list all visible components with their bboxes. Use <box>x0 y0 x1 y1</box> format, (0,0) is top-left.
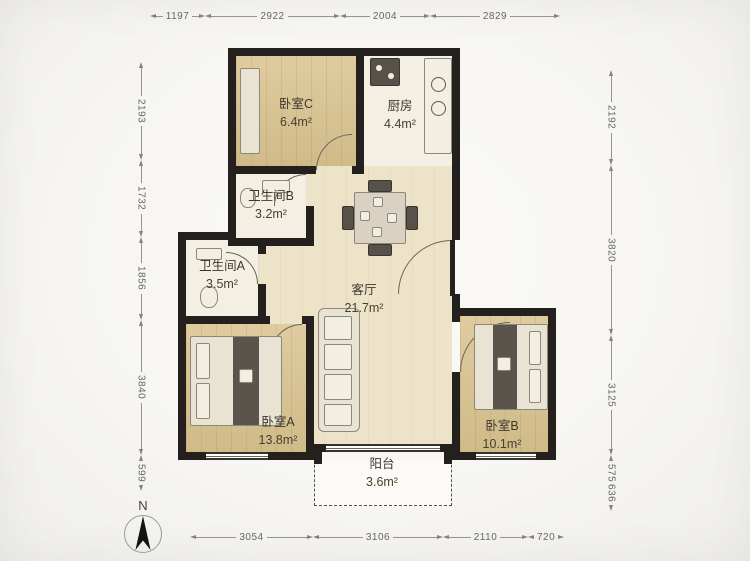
room-name: 卫生间B <box>223 188 319 206</box>
dim-line <box>141 214 142 231</box>
north-arrow-icon <box>134 516 152 550</box>
bedroom-a-window <box>206 452 268 460</box>
dim-value: 1197 <box>166 11 190 22</box>
dim-line <box>156 16 163 17</box>
dim-line <box>196 537 236 538</box>
room-area: 6.4m² <box>248 114 344 132</box>
dim-line <box>141 68 142 96</box>
room-name: 阳台 <box>334 456 430 474</box>
dim-line <box>141 403 142 449</box>
dimension-segment: 2193 <box>134 62 148 160</box>
dim-value: 3820 <box>606 238 617 262</box>
dimension-segment: 3106 <box>313 531 443 543</box>
dim-value: 1856 <box>136 266 147 290</box>
room-label-bathroom-b: 卫生间B 3.2m² <box>223 188 319 223</box>
dimension-segment: 636 <box>604 481 618 510</box>
room-area: 21.7m² <box>316 300 412 318</box>
dim-line <box>267 537 307 538</box>
room-area: 10.1m² <box>454 436 550 454</box>
wall-segment <box>352 166 364 174</box>
room-label-bathroom-a: 卫生间A 3.5m² <box>174 258 270 293</box>
dim-line <box>400 16 424 17</box>
wall-segment <box>228 48 236 174</box>
wall-segment <box>302 316 314 324</box>
room-label-balcony: 阳台 3.6m² <box>334 456 430 491</box>
sofa-cushion <box>324 344 352 370</box>
arrow-left-icon <box>528 535 534 539</box>
dining-chair <box>342 206 354 230</box>
dim-value: 3125 <box>606 383 617 407</box>
dim-line <box>141 166 142 183</box>
bed-bedroom-b <box>474 324 548 410</box>
dim-line <box>449 537 471 538</box>
place-setting <box>373 197 383 207</box>
dim-value: 2192 <box>606 105 617 129</box>
sink-icon <box>431 77 446 92</box>
room-area: 13.8m² <box>230 432 326 450</box>
dim-line <box>393 537 437 538</box>
burner-icon <box>376 65 382 71</box>
dim-line <box>611 341 612 380</box>
dim-value: 2193 <box>136 99 147 123</box>
dim-value: 2004 <box>373 11 397 22</box>
room-area: 3.5m² <box>174 276 270 294</box>
dimension-segment: 2110 <box>443 531 528 543</box>
room-name: 卧室B <box>454 418 550 436</box>
room-label-living-room: 客厅 21.7m² <box>316 282 412 317</box>
dim-line <box>611 133 612 159</box>
floor-plan: 卧室C 6.4m² 厨房 4.4m² 卫生间B 3.2m² 卫生间A 3.5m²… <box>0 0 750 561</box>
entrance-door-leaf <box>450 240 455 296</box>
dimension-segment: 2004 <box>340 10 430 22</box>
dimension-segment: 2192 <box>604 70 618 165</box>
dim-line <box>611 410 612 449</box>
dim-line <box>288 16 334 17</box>
wall-segment <box>178 232 236 240</box>
wall-segment <box>258 246 266 254</box>
arrow-right-icon <box>558 535 564 539</box>
dim-line <box>192 16 199 17</box>
room-name: 客厅 <box>316 282 412 300</box>
wall-segment <box>228 238 314 246</box>
dim-value: 2922 <box>260 11 284 22</box>
dim-line <box>141 243 142 263</box>
wall-segment <box>452 316 460 322</box>
compass: N <box>118 498 168 553</box>
pillow <box>196 383 210 419</box>
room-label-bedroom-b: 卧室B 10.1m² <box>454 418 550 453</box>
dimension-segment: 3820 <box>604 165 618 335</box>
wall-segment <box>452 308 556 316</box>
sofa-cushion <box>324 316 352 340</box>
bed-bedroom-a <box>190 336 282 426</box>
dining-chair <box>406 206 418 230</box>
bedroom-b-window <box>476 452 536 460</box>
arrow-up-icon <box>139 455 143 461</box>
pillow <box>529 369 541 403</box>
room-area: 3.6m² <box>334 474 430 492</box>
wall-segment <box>314 452 322 464</box>
dimension-segment: 1197 <box>150 10 205 22</box>
arrow-up-icon <box>609 455 613 461</box>
compass-north-label: N <box>118 498 168 513</box>
dim-line <box>141 326 142 372</box>
wall-segment <box>452 48 460 170</box>
dim-value: 599 <box>136 464 147 482</box>
place-setting <box>372 227 382 237</box>
wall-segment <box>452 170 460 240</box>
room-label-kitchen: 厨房 4.4m² <box>352 98 448 133</box>
arrow-right-icon <box>554 14 560 18</box>
dimension-segment: 2829 <box>430 10 560 22</box>
sofa-cushion <box>324 374 352 400</box>
dimension-segment: 3840 <box>134 320 148 455</box>
dim-value: 3054 <box>239 532 263 543</box>
room-name: 卫生间A <box>174 258 270 276</box>
dim-value: 720 <box>537 532 555 543</box>
dimension-segment: 3125 <box>604 335 618 455</box>
sofa-cushion <box>324 404 352 426</box>
pillow <box>529 331 541 365</box>
dim-value: 3840 <box>136 375 147 399</box>
stove <box>370 58 400 86</box>
dim-value: 575 <box>606 464 617 482</box>
arrow-down-icon <box>139 485 143 491</box>
dimension-segment: 2922 <box>205 10 340 22</box>
dim-line <box>319 537 363 538</box>
dining-chair <box>368 180 392 192</box>
place-setting <box>360 211 370 221</box>
dim-value: 636 <box>606 484 617 502</box>
dimension-segment: 575 <box>604 455 618 481</box>
dimension-segment: 1856 <box>134 237 148 320</box>
dim-line <box>141 294 142 314</box>
dim-line <box>500 537 522 538</box>
dim-line <box>346 16 370 17</box>
dim-value: 1732 <box>136 186 147 210</box>
dim-value: 2829 <box>483 11 507 22</box>
bed-tray <box>239 369 253 383</box>
dim-value: 2110 <box>474 532 498 543</box>
pillow <box>196 343 210 379</box>
burner-icon <box>388 73 394 79</box>
dim-value: 3106 <box>366 532 390 543</box>
arrow-down-icon <box>609 505 613 511</box>
place-setting <box>387 213 397 223</box>
dimension-segment: 720 <box>528 531 560 543</box>
wall-segment <box>444 452 452 464</box>
room-label-bedroom-c: 卧室C 6.4m² <box>248 96 344 131</box>
room-label-bedroom-a: 卧室A 13.8m² <box>230 414 326 449</box>
bed-tray <box>497 357 511 371</box>
dimension-segment: 599 <box>134 455 148 492</box>
room-area: 4.4m² <box>352 116 448 134</box>
compass-circle <box>124 515 162 553</box>
dim-line <box>211 16 257 17</box>
wall-segment <box>228 166 316 174</box>
dim-line <box>611 76 612 102</box>
room-name: 卧室C <box>248 96 344 114</box>
dim-line <box>611 171 612 235</box>
dining-table <box>354 192 406 244</box>
room-area: 3.2m² <box>223 206 319 224</box>
dimension-segment: 3054 <box>190 531 313 543</box>
room-name: 厨房 <box>352 98 448 116</box>
dim-line <box>436 16 480 17</box>
room-name: 卧室A <box>230 414 326 432</box>
wall-segment <box>440 444 452 452</box>
dining-chair <box>368 244 392 256</box>
balcony-sliding-door <box>326 444 440 452</box>
dim-line <box>611 265 612 329</box>
dimension-segment: 1732 <box>134 160 148 237</box>
wall-segment <box>178 316 270 324</box>
dim-line <box>510 16 554 17</box>
dim-line <box>141 126 142 154</box>
wall-segment <box>228 48 460 56</box>
